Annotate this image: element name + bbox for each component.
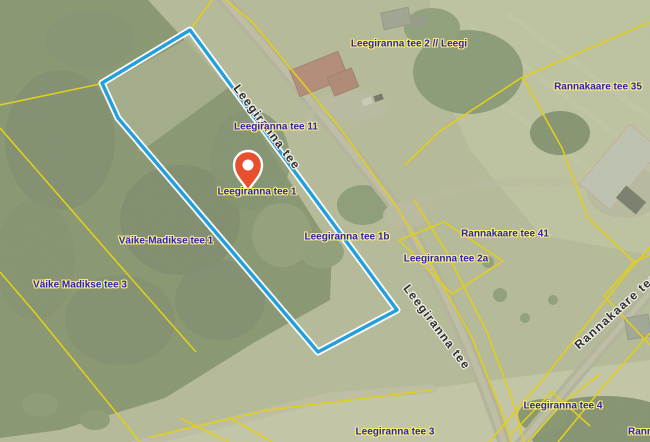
aerial-map-art <box>0 0 650 442</box>
photo-grain <box>0 0 650 442</box>
terrain <box>0 0 650 442</box>
pin-hole <box>243 160 254 171</box>
map-canvas[interactable]: Leegiranna tee Leegiranna tee Rannakaare… <box>0 0 650 442</box>
